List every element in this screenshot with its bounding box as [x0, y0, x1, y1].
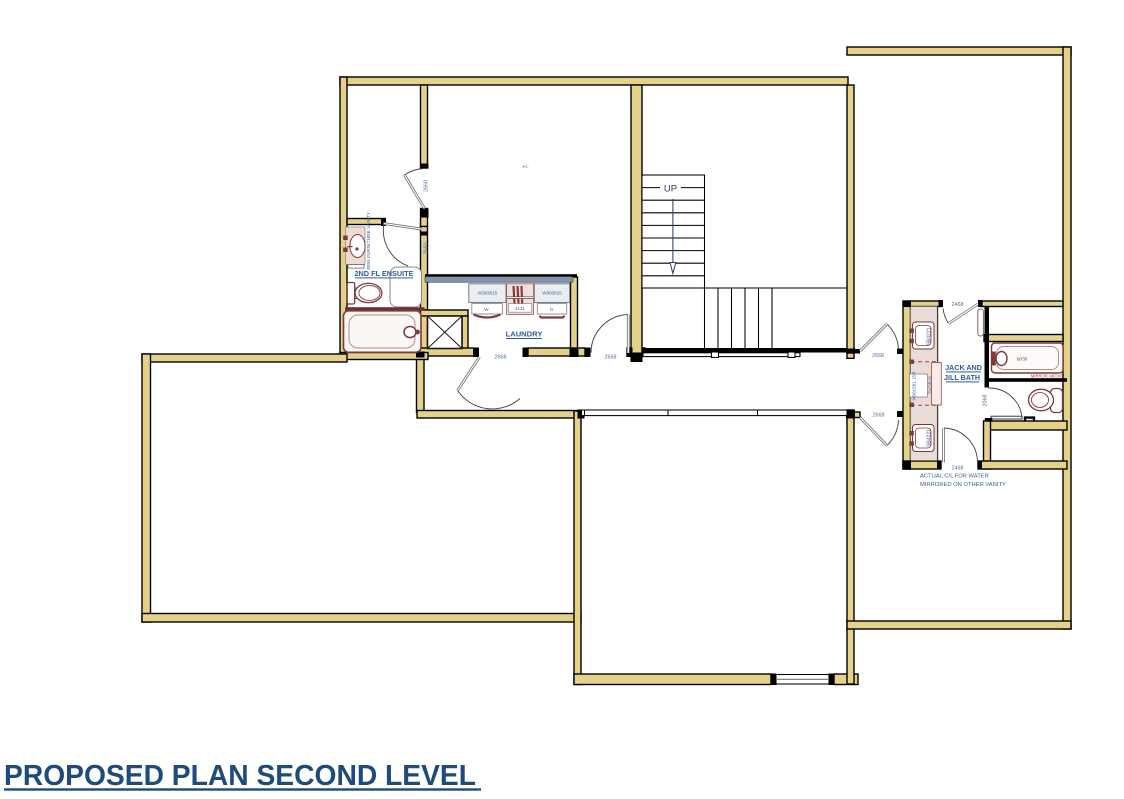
svg-text:LAUNDRY: LAUNDRY [506, 330, 543, 339]
svg-text:JILL BATH: JILL BATH [944, 373, 980, 382]
svg-text:3055 FURNITURE VANITY: 3055 FURNITURE VANITY [366, 211, 372, 270]
svg-text:4121: 4121 [515, 306, 526, 311]
svg-text:ACTUAL C/L FOR WATER: ACTUAL C/L FOR WATER [920, 474, 989, 480]
svg-text:UP: UP [664, 184, 677, 195]
svg-text:2668: 2668 [605, 355, 617, 361]
svg-text:2668: 2668 [873, 413, 885, 419]
svg-text:2660: 2660 [424, 180, 430, 192]
svg-text:M901561 15R: M901561 15R [912, 371, 917, 401]
svg-text:2068: 2068 [983, 395, 989, 407]
svg-text:SVDB16: SVDB16 [928, 376, 933, 394]
svg-text:SB4221: SB4221 [927, 429, 933, 447]
svg-text:W303615: W303615 [478, 291, 498, 296]
svg-text:60/30: 60/30 [1017, 356, 1028, 361]
svg-text:2468: 2468 [952, 466, 964, 472]
svg-text:2668: 2668 [872, 353, 884, 359]
svg-text:2468: 2468 [952, 302, 964, 308]
svg-text:PROPOSED PLAN SECOND LEVEL: PROPOSED PLAN SECOND LEVEL [4, 760, 476, 792]
svg-text:+/-: +/- [522, 165, 529, 171]
svg-text:W303615: W303615 [542, 291, 562, 296]
svg-text:MIRROR ABOVE: MIRROR ABOVE [1031, 374, 1064, 379]
svg-text:SB4221: SB4221 [927, 327, 933, 345]
svg-text:2ND FL ENSUITE: 2ND FL ENSUITE [354, 269, 413, 278]
svg-text:JACK AND: JACK AND [945, 363, 982, 372]
svg-text:MIRRORED ON OTHER VANITY: MIRRORED ON OTHER VANITY [920, 482, 1006, 488]
svg-text:2660: 2660 [424, 243, 430, 255]
svg-text:2668: 2668 [495, 355, 507, 361]
